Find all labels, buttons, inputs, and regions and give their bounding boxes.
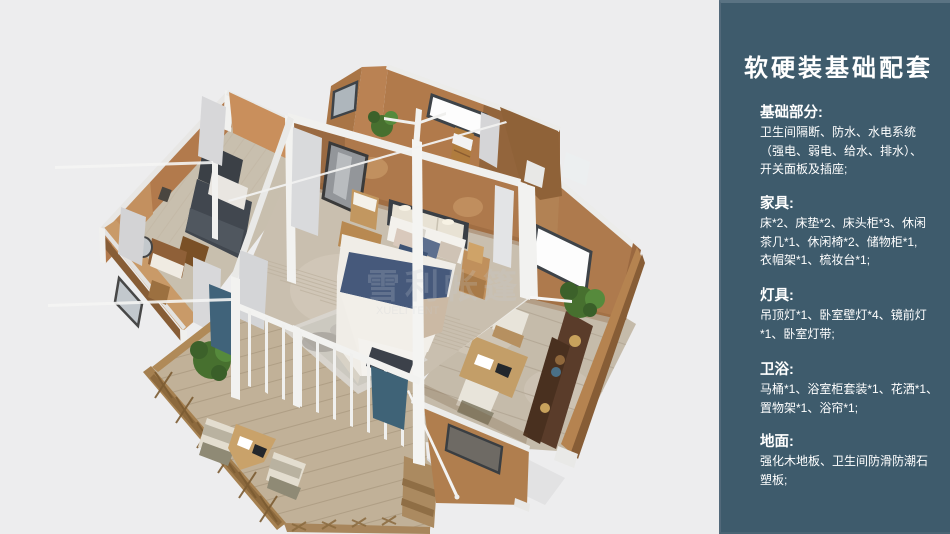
svg-text:XUELI TENT: XUELI TENT — [376, 305, 440, 317]
svg-text:雪利帐篷: 雪利帐篷 — [366, 268, 522, 306]
